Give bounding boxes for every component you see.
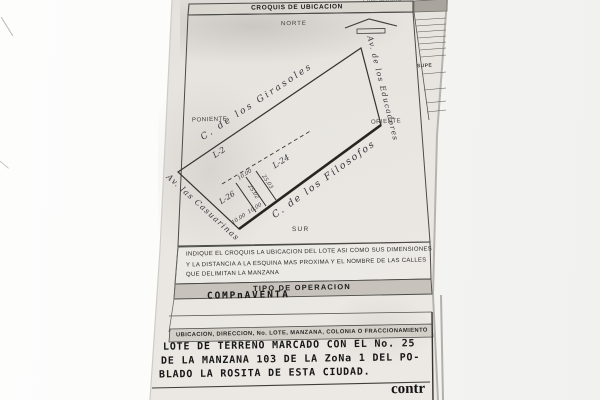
fold-shadow xyxy=(441,295,443,400)
footer-partial-word: contr xyxy=(391,381,425,399)
paper-edge-left xyxy=(150,0,172,400)
paper-edge-right xyxy=(433,0,447,400)
norte-label: NORTE xyxy=(281,21,307,27)
superficie-partial-label: SUPE xyxy=(417,63,433,70)
top-right-shaded-cell xyxy=(414,0,447,12)
sur-label: SUR xyxy=(292,226,309,233)
lower-right-border xyxy=(432,312,433,400)
tipo-operacion-value: COMPnAVENTA xyxy=(207,289,290,301)
photographed-document: PROPIETARIO CROQUIS DE UBICACION NORTE P… xyxy=(0,0,600,400)
section-divider xyxy=(169,312,432,316)
bottom-rule xyxy=(152,382,430,388)
